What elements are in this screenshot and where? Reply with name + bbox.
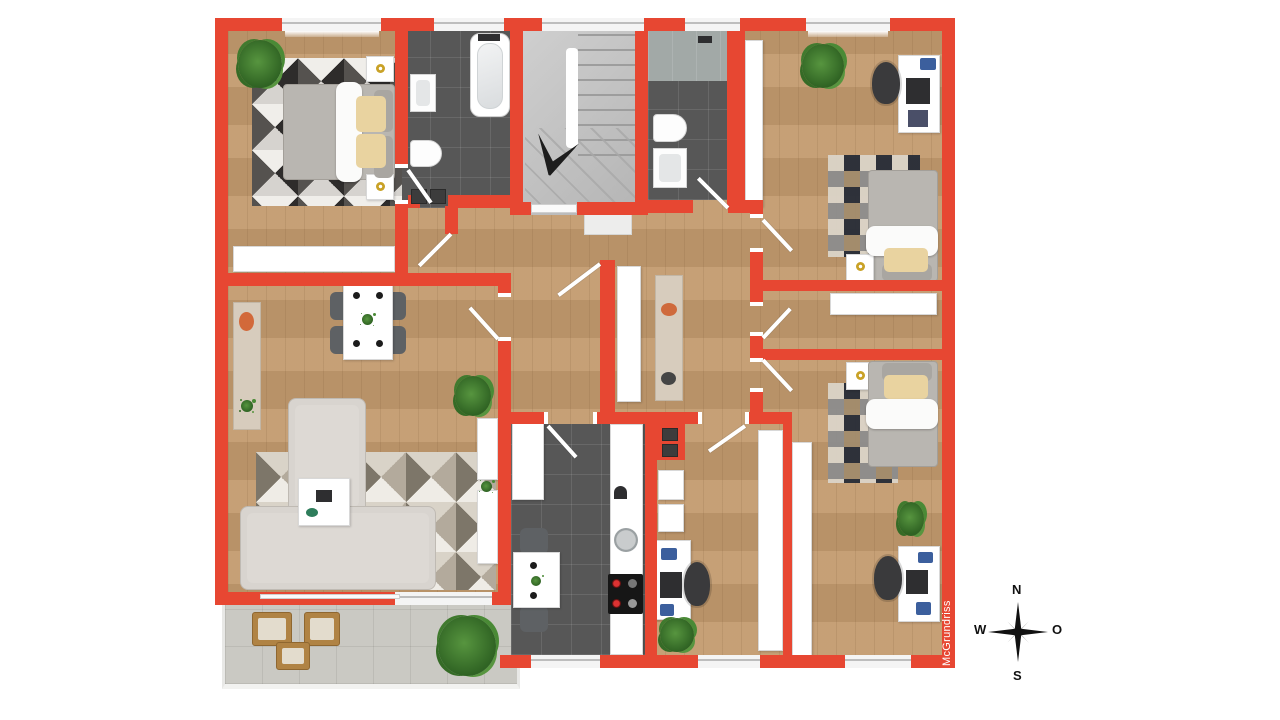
plate <box>530 562 537 569</box>
wall-corridor-d <box>750 392 763 412</box>
plant-bedroom3 <box>898 502 924 536</box>
monitor-bedroom2 <box>906 78 930 104</box>
wall-staircase-wc <box>635 31 648 215</box>
wardrobe-storage <box>830 293 937 315</box>
compass-north-label: N <box>1012 582 1021 597</box>
coffee-table-book <box>316 490 332 502</box>
compass-west-label: W <box>974 622 986 637</box>
office-chair-bedroom3 <box>874 556 902 600</box>
kitchen-table-plant <box>531 576 541 586</box>
toilet-wc <box>653 114 687 142</box>
tv-board-plant <box>481 481 492 492</box>
window-bedroom2 <box>806 18 890 31</box>
window-kitchen <box>531 655 600 668</box>
bathtub <box>470 33 510 117</box>
wardrobe-office <box>758 430 783 651</box>
decor-dark <box>661 372 676 385</box>
plant-bedroom1 <box>238 40 282 88</box>
wc-sink-cabinet <box>653 148 687 188</box>
wall-wc-bottom-a <box>648 200 693 213</box>
jamb <box>745 412 749 424</box>
bed-double-pillow-beige2 <box>356 134 386 168</box>
jamb <box>498 337 511 341</box>
tv-board-2 <box>477 490 498 564</box>
compass-south-label: S <box>1013 668 1022 683</box>
balcony-table <box>276 642 310 670</box>
wall-livingroom-kitchen <box>498 337 511 595</box>
wall-corridor-b <box>750 252 763 302</box>
door-entrance <box>531 204 577 213</box>
wall-outer-right <box>942 18 955 668</box>
entry-mat <box>584 214 632 235</box>
wall-livingroom-top <box>228 273 511 286</box>
toilet-bathroom <box>410 140 442 167</box>
balcony-sliding-door <box>395 592 492 605</box>
wall-entry-b <box>577 202 648 215</box>
wall-wc-bedroom2 <box>727 31 745 207</box>
curtain-bedroom1 <box>285 31 379 37</box>
wall-corridor-c <box>750 336 763 358</box>
window-bedroom3 <box>845 655 911 668</box>
stair-rail <box>566 48 578 148</box>
wardrobe-bedroom3 <box>792 442 812 656</box>
compass-rose-icon <box>988 600 1048 664</box>
tv-board-1 <box>477 418 498 480</box>
office-chair-bedroom2 <box>872 62 900 104</box>
window-staircase <box>542 18 644 31</box>
bed-bedroom3-blanket <box>866 399 938 429</box>
plate <box>376 292 383 299</box>
watermark-mcgrundriss: McGrundriss <box>941 576 955 666</box>
appliance-office-1 <box>662 428 678 441</box>
plate <box>353 292 360 299</box>
wall-office-top-a <box>657 412 702 424</box>
coffee-table-decor <box>306 508 318 517</box>
balcony-chair-1 <box>252 612 292 646</box>
lamp-icon <box>376 64 385 73</box>
sideboard-plant <box>241 400 253 412</box>
desk-item-office <box>660 604 674 616</box>
jamb <box>698 412 702 424</box>
shower-head <box>698 36 712 43</box>
cabinet-office-1 <box>658 470 684 500</box>
window-bedroom1 <box>282 18 381 31</box>
wall-office-bedroom3 <box>783 424 792 655</box>
wall-storage-bottom <box>763 349 942 360</box>
wall-kitchen-office <box>645 412 657 655</box>
plate <box>376 340 383 347</box>
balcony-chair-2 <box>304 612 340 646</box>
kitchen-faucet <box>614 486 627 499</box>
monitor-office <box>660 572 682 598</box>
bathtub-tap <box>478 34 500 41</box>
balcony-door-panel <box>260 594 400 599</box>
monitor-bedroom3 <box>906 570 928 594</box>
jamb <box>593 412 597 424</box>
coffee-table <box>298 478 350 526</box>
dresser-bedroom1 <box>233 246 395 272</box>
jamb <box>395 200 408 204</box>
jamb <box>498 293 511 297</box>
wall-entry-a <box>510 202 531 215</box>
wall-bedroom2-bottom <box>763 280 942 291</box>
plant-living <box>455 376 491 416</box>
kitchen-chair-2 <box>520 606 548 632</box>
lamp-icon <box>376 182 385 191</box>
compass: N W O S <box>968 582 1068 686</box>
window-office <box>698 655 760 668</box>
wall-bathroom-staircase <box>510 31 523 215</box>
hall-wardrobe <box>617 266 641 402</box>
appliance-office-2 <box>662 444 678 457</box>
window-bathroom <box>434 18 504 31</box>
vase-orange <box>239 312 254 331</box>
wall-hall-center <box>600 260 615 424</box>
jamb <box>750 248 763 252</box>
jamb <box>750 388 763 392</box>
jamb <box>750 302 763 306</box>
plant-office <box>660 618 694 652</box>
jamb <box>750 214 763 218</box>
plate <box>353 340 360 347</box>
plate <box>530 592 537 599</box>
lamp-icon <box>856 262 865 271</box>
kitchen-chair-1 <box>520 528 548 554</box>
floor-plan-canvas: McGrundriss N W O S <box>0 0 1280 720</box>
jamb <box>544 412 548 424</box>
window-wc <box>685 18 740 31</box>
laptop-bedroom3 <box>918 552 933 563</box>
dining-table-plant <box>362 314 373 325</box>
plant-bedroom2 <box>802 44 844 88</box>
kitchen-cabinet-left <box>512 420 544 500</box>
laptop-office <box>661 548 677 560</box>
wall-outer-left <box>215 18 228 605</box>
wardrobe-bedroom2 <box>745 40 763 207</box>
wall-kitchen-top-a <box>511 412 548 424</box>
wall-stub-hall <box>445 206 458 234</box>
laptop-bedroom2 <box>920 58 936 70</box>
bathroom-sink <box>410 74 436 112</box>
decor-bowl-orange <box>661 303 677 316</box>
bed-bedroom2-pillow <box>884 248 928 272</box>
cabinet-office-2 <box>658 504 684 532</box>
desk-chair-cushion <box>908 110 928 127</box>
stove <box>608 574 643 614</box>
compass-east-label: O <box>1052 622 1062 637</box>
wall-office-top-b <box>745 412 792 424</box>
bed-double-pillow-beige1 <box>356 96 386 132</box>
curtain-bedroom2 <box>808 31 888 37</box>
kitchen-sink <box>614 528 638 552</box>
jamb <box>395 164 408 168</box>
shower <box>648 31 727 81</box>
plant-balcony <box>438 616 496 676</box>
wall-bedroom1-bathroom <box>395 31 408 168</box>
office-chair-office <box>684 562 710 606</box>
lamp-icon <box>856 371 865 380</box>
bed-bedroom3-pillow <box>884 375 928 399</box>
desk-item-bedroom3 <box>916 602 931 615</box>
